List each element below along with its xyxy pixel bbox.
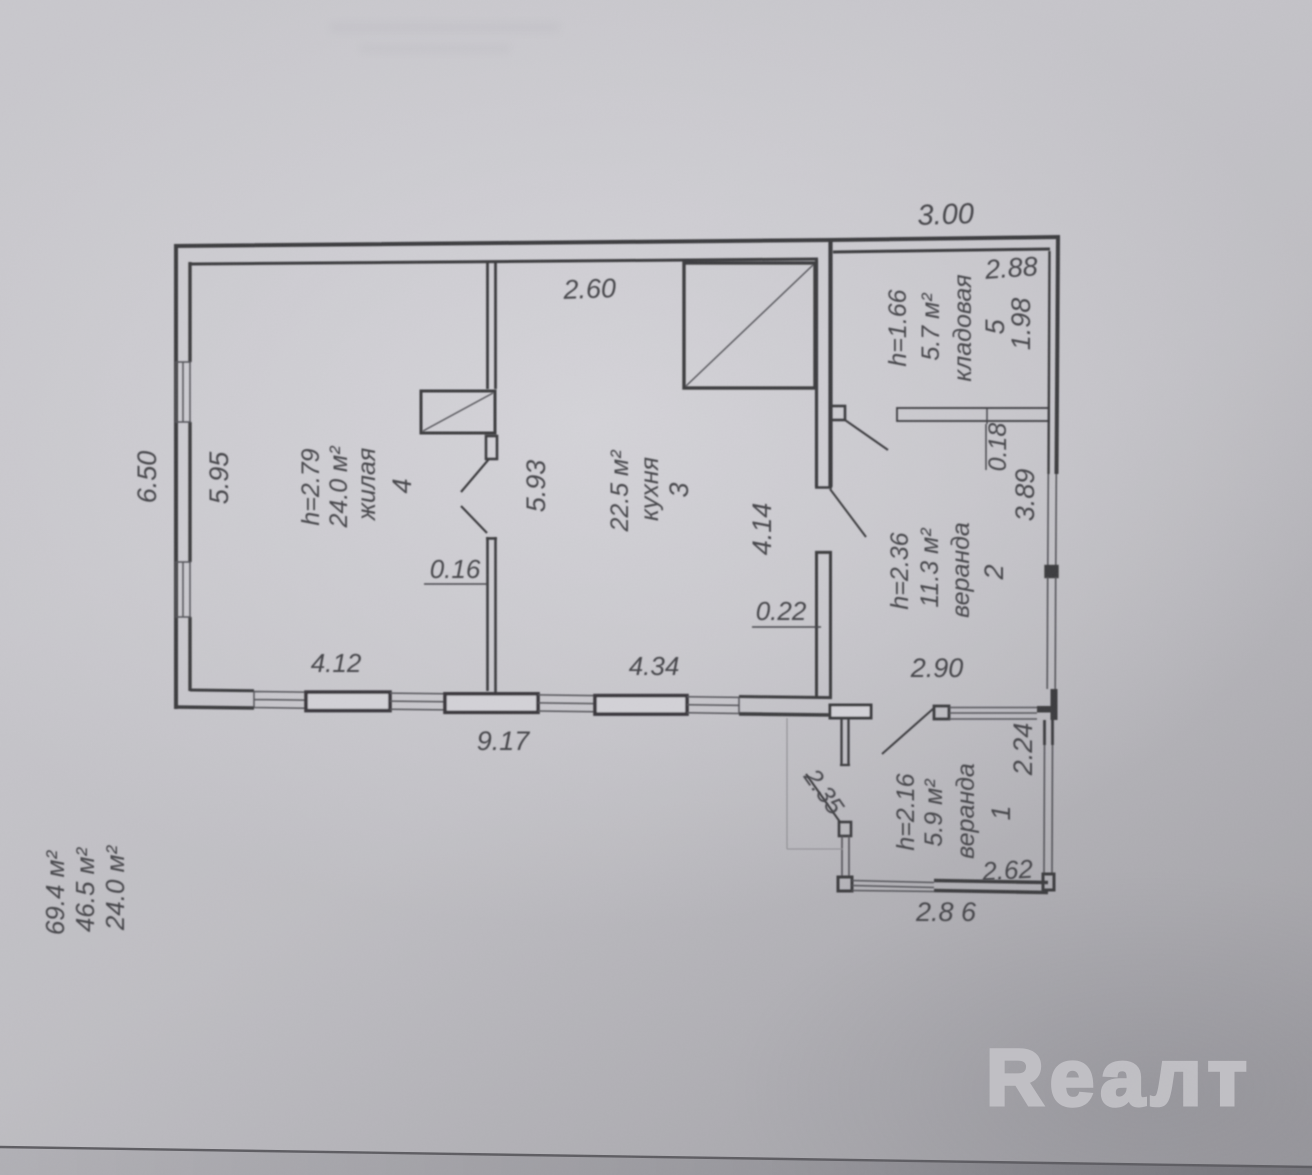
svg-text:Reaлт: Reaлт	[986, 1033, 1253, 1122]
